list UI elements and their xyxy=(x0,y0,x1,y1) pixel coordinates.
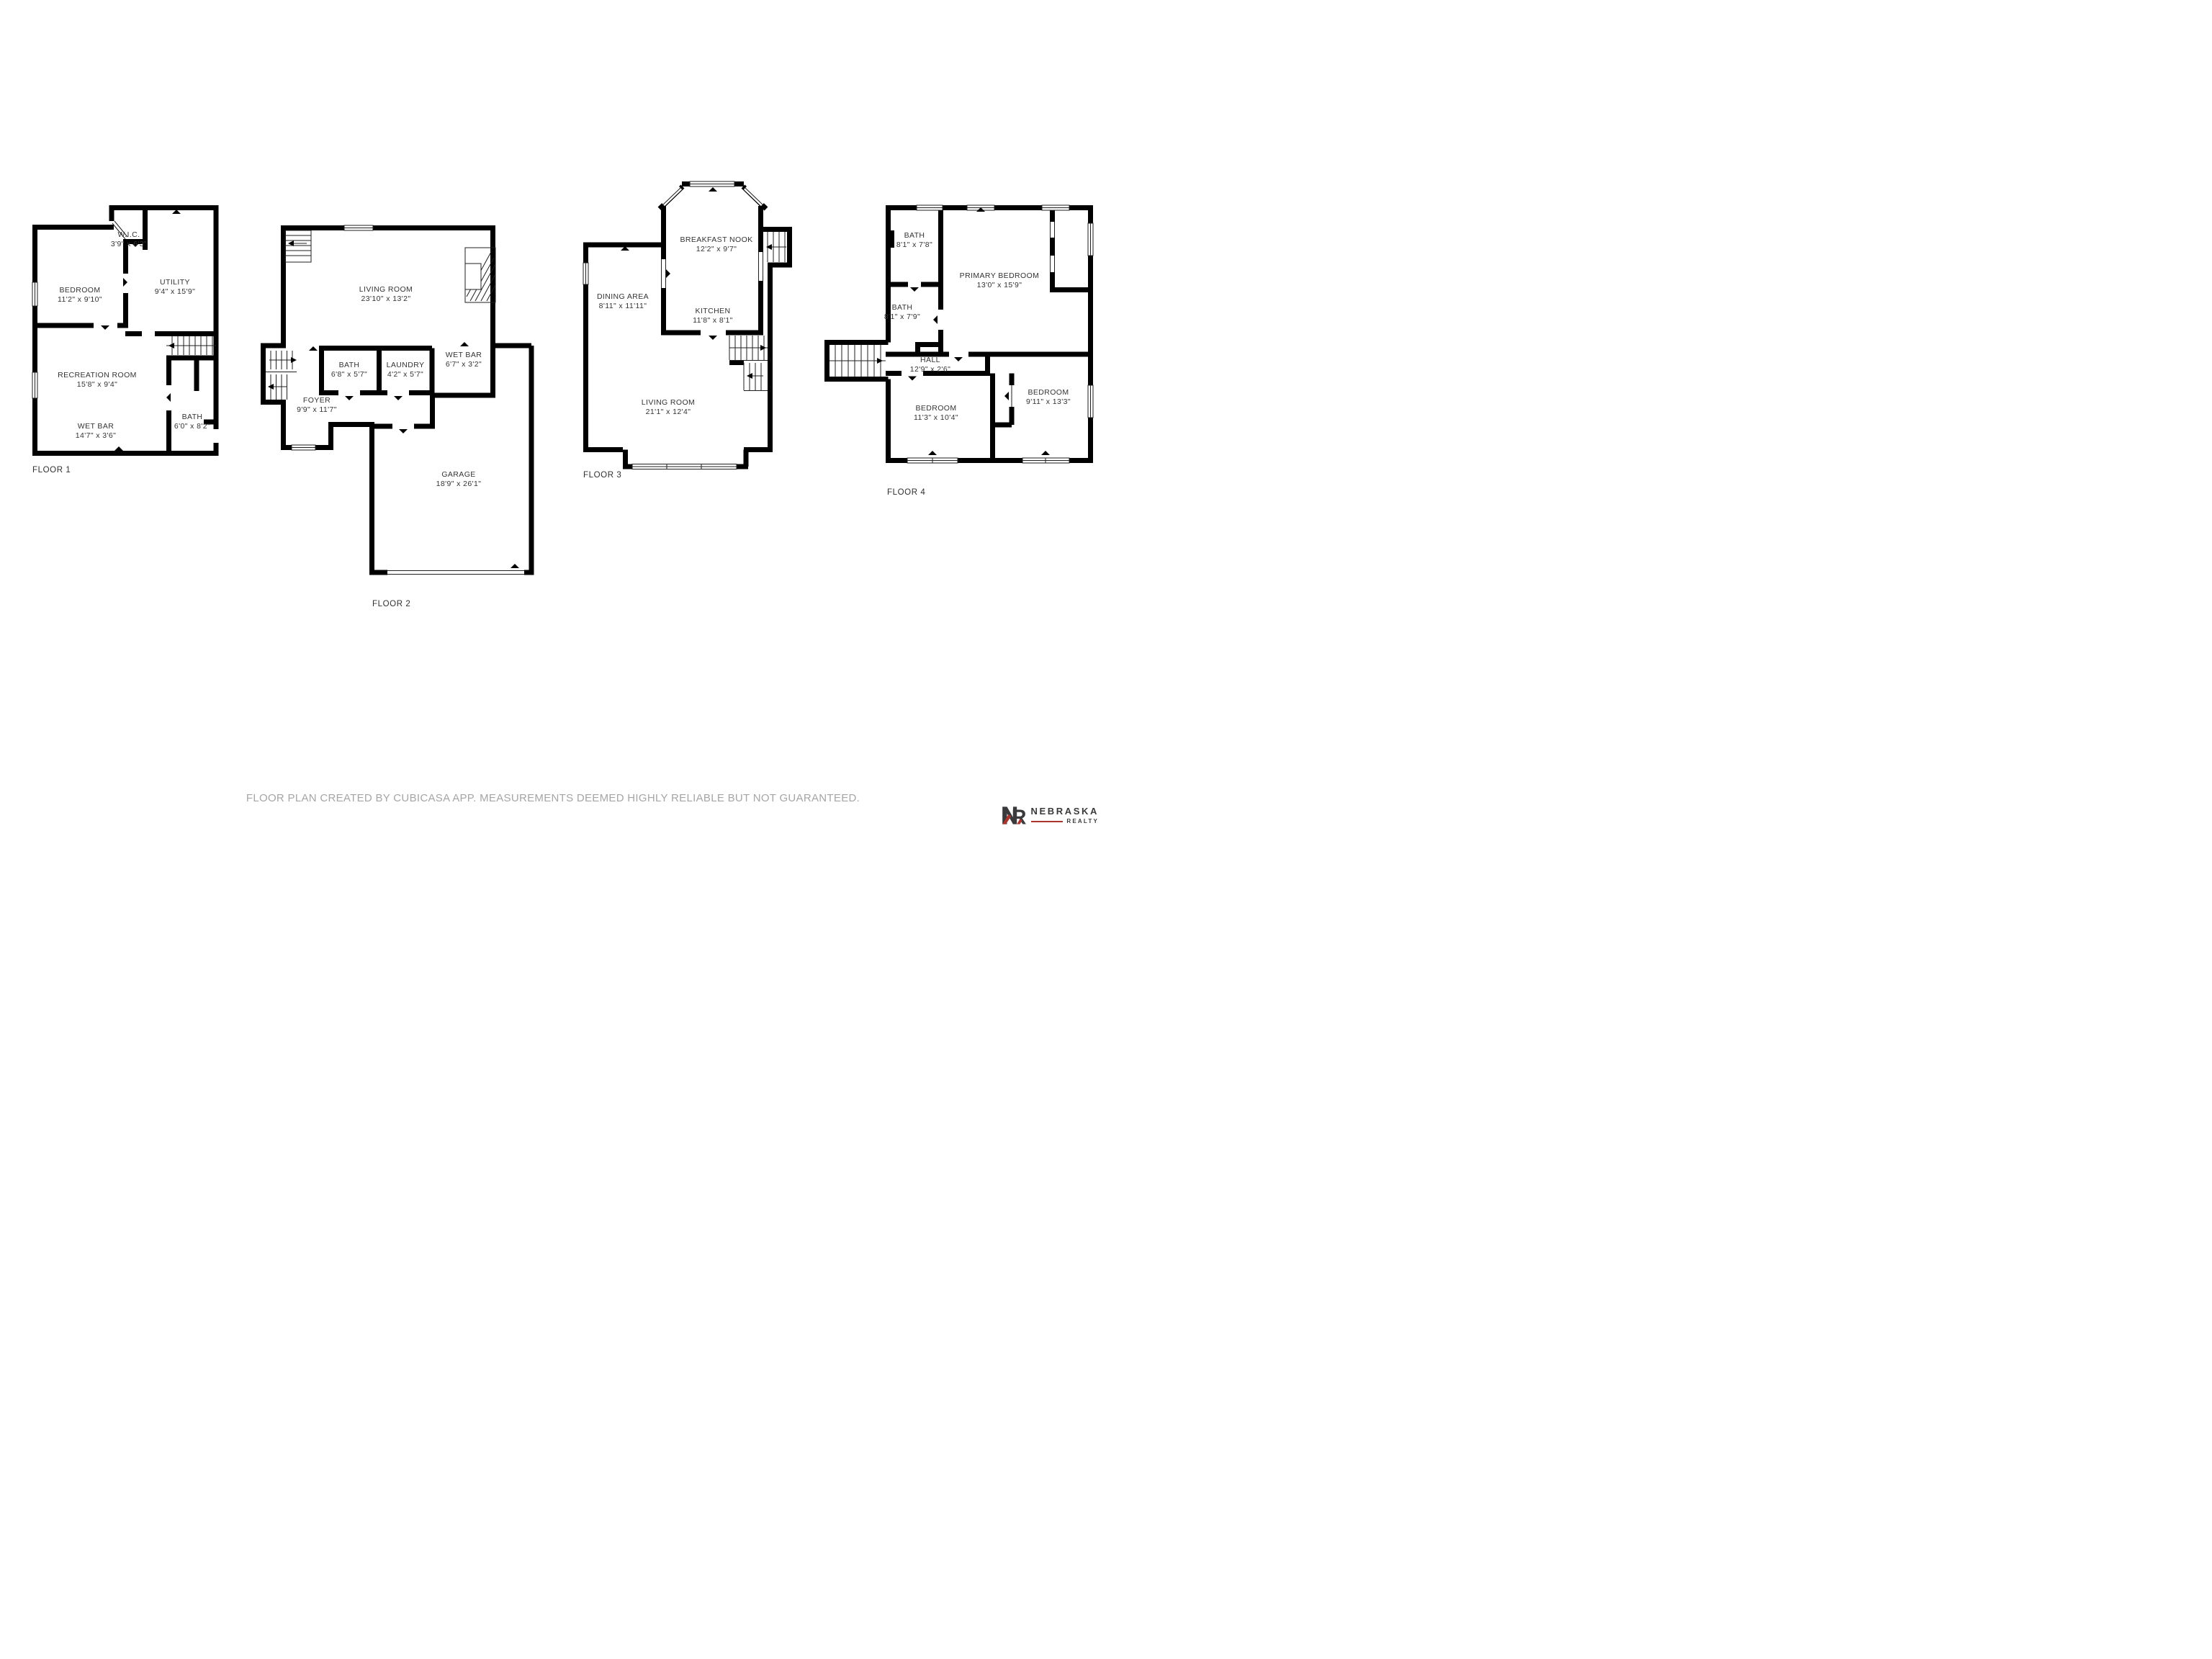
floorplan-floor-1: W.I.C. 3'9" x 6'3" BEDROOM 11'2" x 9'10"… xyxy=(32,205,221,479)
floor-4-plan xyxy=(821,202,1096,490)
room-label-hall: HALL 12'9" x 2'6" xyxy=(910,356,951,374)
closet-doors xyxy=(1012,222,1055,407)
room-label-living-room: LIVING ROOM 21'1" x 12'4" xyxy=(642,398,695,417)
floor-4-caption: FLOOR 4 xyxy=(887,488,925,497)
door-markers xyxy=(309,342,469,433)
room-label-primary-bedroom: PRIMARY BEDROOM 13'0" x 15'9" xyxy=(960,271,1040,290)
room-label-living-room: LIVING ROOM 23'10" x 13'2" xyxy=(359,285,413,304)
stairs xyxy=(829,345,886,377)
walls xyxy=(583,184,792,467)
walls xyxy=(824,208,1093,464)
floorplan-floor-4: BATH 8'1" x 7'8" BATH 8'1" x 7'9" PRIMAR… xyxy=(821,202,1096,504)
room-label-bedroom-left: BEDROOM 11'3" x 10'4" xyxy=(914,404,958,423)
room-label-kitchen: KITCHEN 11'8" x 8'1" xyxy=(693,307,733,325)
room-label-bath: BATH 6'8" x 5'7" xyxy=(331,361,367,379)
room-label-laundry: LAUNDRY 4'2" x 5'7" xyxy=(387,361,425,379)
floorplan-floor-3: BREAKFAST NOOK 12'2" x 9'7" DINING AREA … xyxy=(582,180,798,486)
logo-sub-text: REALTY xyxy=(1066,818,1099,824)
room-label-foyer: FOYER 9'9" x 11'7" xyxy=(297,396,337,415)
logo-brand-text: NEBRASKA xyxy=(1031,806,1099,817)
room-label-bath-lower: BATH 8'1" x 7'9" xyxy=(884,303,920,322)
room-label-breakfast-nook: BREAKFAST NOOK 12'2" x 9'7" xyxy=(680,235,752,254)
floor-3-caption: FLOOR 3 xyxy=(583,471,621,480)
room-label-bath-upper: BATH 8'1" x 7'8" xyxy=(896,231,932,250)
room-label-garage: GARAGE 18'9" x 26'1" xyxy=(436,470,482,489)
room-label-bath: BATH 6'0" x 8'2" xyxy=(174,413,210,431)
floorplan-floor-2: LIVING ROOM 23'10" x 13'2" BATH 6'8" x 5… xyxy=(259,222,541,614)
stairs xyxy=(266,230,311,400)
room-label-wet-bar: WET BAR 6'7" x 3'2" xyxy=(446,351,482,369)
floor-1-caption: FLOOR 1 xyxy=(32,466,71,475)
floor-2-caption: FLOOR 2 xyxy=(372,600,410,608)
logo-monogram: R xyxy=(1000,804,1028,827)
garage-door xyxy=(387,564,524,575)
floorplan-page: W.I.C. 3'9" x 6'3" BEDROOM 11'2" x 9'10"… xyxy=(0,0,1106,829)
room-label-dining-area: DINING AREA 8'11" x 11'11" xyxy=(597,292,649,311)
room-label-wic: W.I.C. 3'9" x 6'3" xyxy=(111,230,147,249)
stairs xyxy=(166,336,216,355)
door-gap xyxy=(662,252,763,288)
stairs xyxy=(729,232,786,391)
logo-red-rule xyxy=(1031,821,1064,822)
nebraska-realty-logo: R NEBRASKA REALTY xyxy=(1000,804,1099,827)
disclaimer-text: FLOOR PLAN CREATED BY CUBICASA APP. MEAS… xyxy=(0,792,1106,804)
floor-3-plan xyxy=(582,180,798,477)
bay-window xyxy=(663,181,763,204)
room-label-recreation-room: RECREATION ROOM 15'8" x 9'4" xyxy=(58,371,137,390)
room-label-wet-bar: WET BAR 14'7" x 3'6" xyxy=(76,422,117,441)
room-label-bedroom-right: BEDROOM 9'11" x 13'3" xyxy=(1026,388,1071,407)
room-label-utility: UTILITY 9'4" x 15'9" xyxy=(155,278,196,297)
window xyxy=(292,225,373,450)
room-label-bedroom: BEDROOM 11'2" x 9'10" xyxy=(58,286,102,305)
